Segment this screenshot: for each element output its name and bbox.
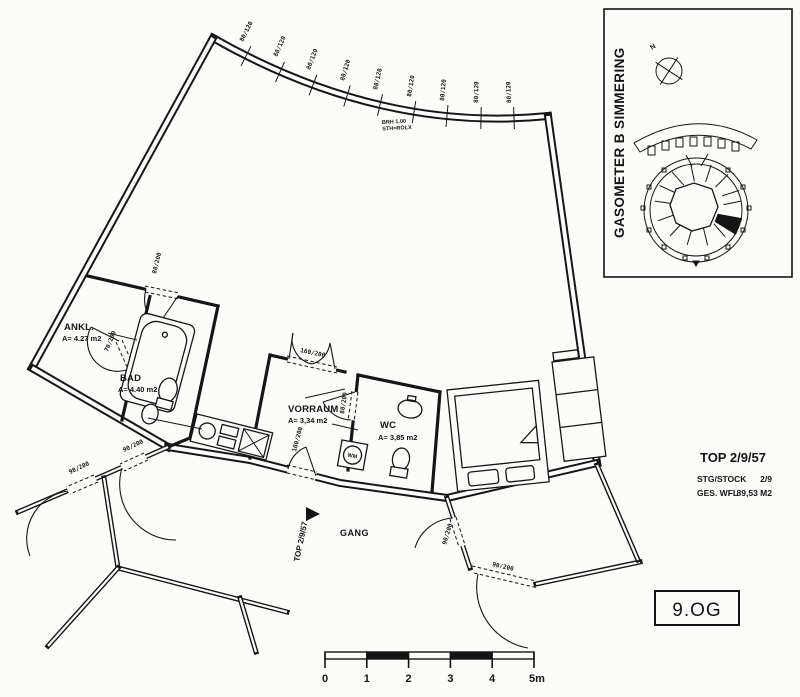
- floor-badge: 9.OG: [655, 591, 739, 625]
- room-label-vorraum: VORRAUM: [288, 404, 338, 415]
- scale-tick-label: 3: [447, 673, 453, 685]
- door-dim-label: 90/200: [492, 561, 515, 573]
- window-dim-label: 80/120: [339, 58, 352, 81]
- scale-bar: 0 1 2 3 4 5m: [322, 652, 545, 685]
- scale-tick-label: 0: [322, 673, 328, 685]
- window-dim-label: 80/120: [272, 35, 287, 58]
- toilet-wc: [390, 447, 411, 478]
- window-dim-label: 80/120: [239, 20, 255, 43]
- room-area-ankl: A= 4.27 m2: [62, 334, 101, 343]
- floor-plan-drawing: 80/120 80/120 80/120 80/120 80/120 80/12…: [0, 0, 800, 697]
- washing-machine: WM: [337, 440, 367, 470]
- title-block-row-value: 2/9: [760, 474, 772, 484]
- site-plan-inset: GASOMETER B SIMMERING N: [604, 9, 792, 277]
- window-dim-label: 80/120: [372, 67, 384, 90]
- north-compass-icon: N: [647, 43, 691, 93]
- inset-gasometer-plan: [641, 158, 751, 266]
- room-area-vorraum: A= 3,34 m2: [288, 416, 327, 425]
- room-label-gang: GANG: [340, 528, 369, 538]
- title-block: TOP 2/9/57 STG/STOCK 2/9 GES. WFL 89,53 …: [697, 450, 772, 498]
- room-label-wc: WC: [380, 420, 396, 431]
- inset-title: GASOMETER B SIMMERING: [612, 47, 627, 238]
- title-block-top: TOP 2/9/57: [700, 450, 766, 465]
- scale-tick-label: 5m: [529, 673, 545, 685]
- entrance-arrow-icon: [306, 507, 320, 521]
- entrance-marker: TOP 2/9/57: [292, 507, 320, 562]
- floor-plan-sheet: 80/120 80/120 80/120 80/120 80/120 80/12…: [0, 0, 800, 697]
- room-area-wc: A= 3,85 m2: [378, 433, 417, 442]
- window-dim-label: 80/120: [505, 81, 513, 103]
- door-dim-label: 80/200: [151, 251, 163, 274]
- room-label-ankl: ANKL.: [64, 322, 94, 333]
- room-label-bad: BAD: [120, 373, 141, 384]
- bed: [447, 380, 549, 491]
- window-note-line2: STH=ROLX: [382, 125, 412, 133]
- north-label: N: [649, 43, 657, 52]
- title-block-row-value: 89,53 M2: [737, 488, 773, 498]
- door-dim-label: 70/200: [103, 330, 118, 353]
- title-block-row-label: STG/STOCK: [697, 474, 747, 484]
- window-dim-label: 80/120: [406, 74, 416, 97]
- window-dim-label: 80/120: [305, 48, 319, 71]
- entrance-label: TOP 2/9/57: [292, 520, 309, 562]
- scale-tick-label: 1: [364, 673, 370, 685]
- door-dim-label: 90/200: [122, 438, 145, 454]
- door-dim-label: 90/200: [441, 522, 454, 545]
- scale-tick-label: 2: [406, 673, 412, 685]
- inset-border: [604, 9, 792, 277]
- inset-shield-building: [634, 124, 757, 166]
- window-dim-label: 80/120: [439, 79, 448, 102]
- facade-window-dimensions: 80/120 80/120 80/120 80/120 80/120 80/12…: [239, 20, 513, 103]
- floor-badge-label: 9.OG: [672, 600, 721, 621]
- sink-wc: [397, 394, 424, 419]
- inset-highlighted-unit: [715, 214, 743, 235]
- scale-tick-label: 4: [489, 673, 496, 685]
- title-block-row-label: GES. WFL: [697, 488, 738, 498]
- room-area-bad: A= 4.40 m2: [118, 385, 157, 394]
- window-dim-label: 80/120: [473, 81, 480, 103]
- wardrobe: [551, 348, 606, 461]
- door-dim-label: 90/200: [68, 460, 91, 476]
- window-note: BRH 1.00 STH=ROLX: [382, 118, 412, 132]
